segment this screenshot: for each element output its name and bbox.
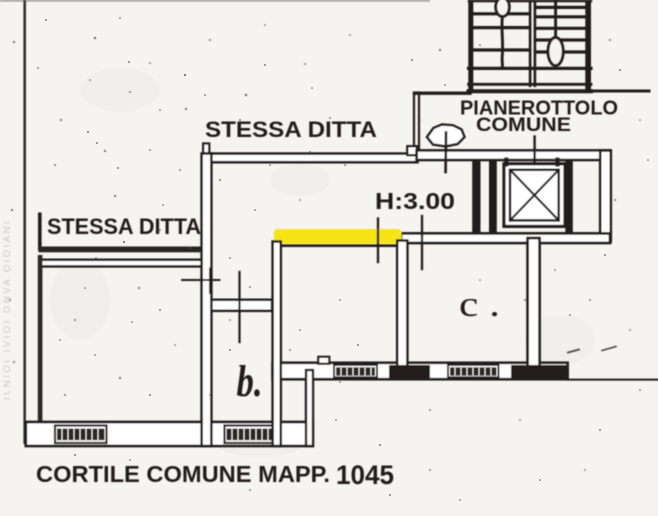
svg-text:H:3.00: H:3.00 [375,188,455,214]
svg-text:STESSA DITTA: STESSA DITTA [205,117,377,142]
svg-text:1045: 1045 [336,460,394,490]
svg-text:STESSA DITTA: STESSA DITTA [47,214,201,239]
svg-text:CORTILE COMUNE MAPP.: CORTILE COMUNE MAPP. [36,461,330,487]
svg-text:ILNIOI IVIOI ONVA OIOIANI: ILNIOI IVIOI ONVA OIOIANI [2,219,13,400]
svg-text:COMUNE: COMUNE [476,115,571,136]
svg-text:b.: b. [237,357,263,406]
svg-text:c .: c . [459,284,500,324]
